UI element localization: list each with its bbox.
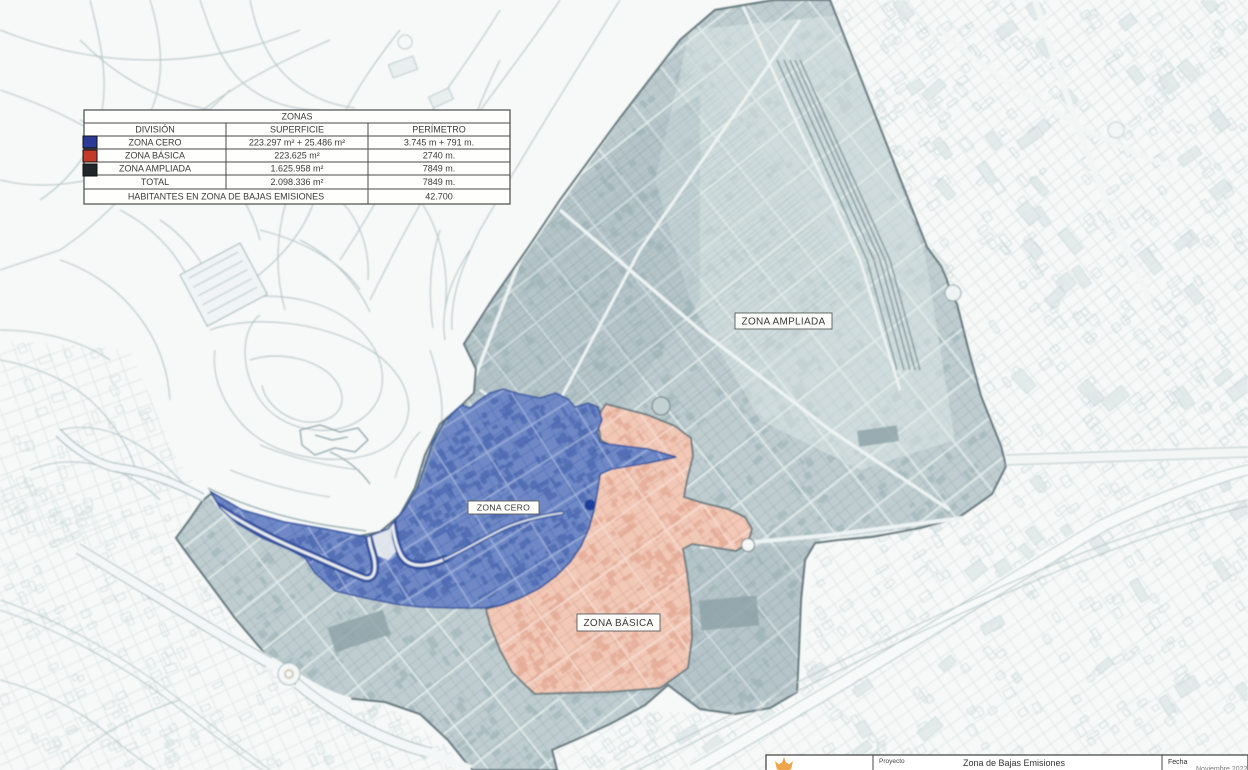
svg-text:223.625 m²: 223.625 m² <box>274 151 320 161</box>
svg-text:Zona de Bajas Emisiones: Zona de Bajas Emisiones <box>963 758 1066 768</box>
svg-text:ZONA AMPLIADA: ZONA AMPLIADA <box>742 317 826 328</box>
svg-text:ZONA BÁSICA: ZONA BÁSICA <box>584 616 654 629</box>
svg-text:ZONA CERO: ZONA CERO <box>477 503 530 513</box>
svg-text:ZONAS: ZONAS <box>281 112 312 122</box>
svg-text:7849 m.: 7849 m. <box>423 164 456 174</box>
svg-text:Fecha: Fecha <box>1168 759 1188 766</box>
svg-text:PERÍMETRO: PERÍMETRO <box>412 125 466 135</box>
svg-text:7849 m.: 7849 m. <box>423 177 456 187</box>
svg-text:Noviembre 2022: Noviembre 2022 <box>1196 766 1247 770</box>
svg-text:3.745 m + 791 m.: 3.745 m + 791 m. <box>404 138 474 148</box>
svg-text:HABITANTES EN ZONA DE BAJAS EM: HABITANTES EN ZONA DE BAJAS EMISIONES <box>128 192 324 202</box>
svg-text:223.297 m² + 25.486 m²: 223.297 m² + 25.486 m² <box>249 138 345 148</box>
svg-text:1.625.958 m²: 1.625.958 m² <box>270 164 323 174</box>
svg-text:ZONA CERO: ZONA CERO <box>128 138 181 148</box>
svg-text:2.098.336 m²: 2.098.336 m² <box>270 177 323 187</box>
svg-text:DIVISIÓN: DIVISIÓN <box>135 125 175 135</box>
svg-text:2740 m.: 2740 m. <box>423 151 456 161</box>
svg-text:42.700: 42.700 <box>425 192 453 202</box>
svg-text:Proyecto: Proyecto <box>879 758 905 765</box>
svg-text:ZONA BÁSICA: ZONA BÁSICA <box>125 151 185 161</box>
svg-text:ZONA AMPLIADA: ZONA AMPLIADA <box>119 164 191 174</box>
svg-text:TOTAL: TOTAL <box>141 177 169 187</box>
svg-text:SUPERFICIE: SUPERFICIE <box>270 125 324 135</box>
